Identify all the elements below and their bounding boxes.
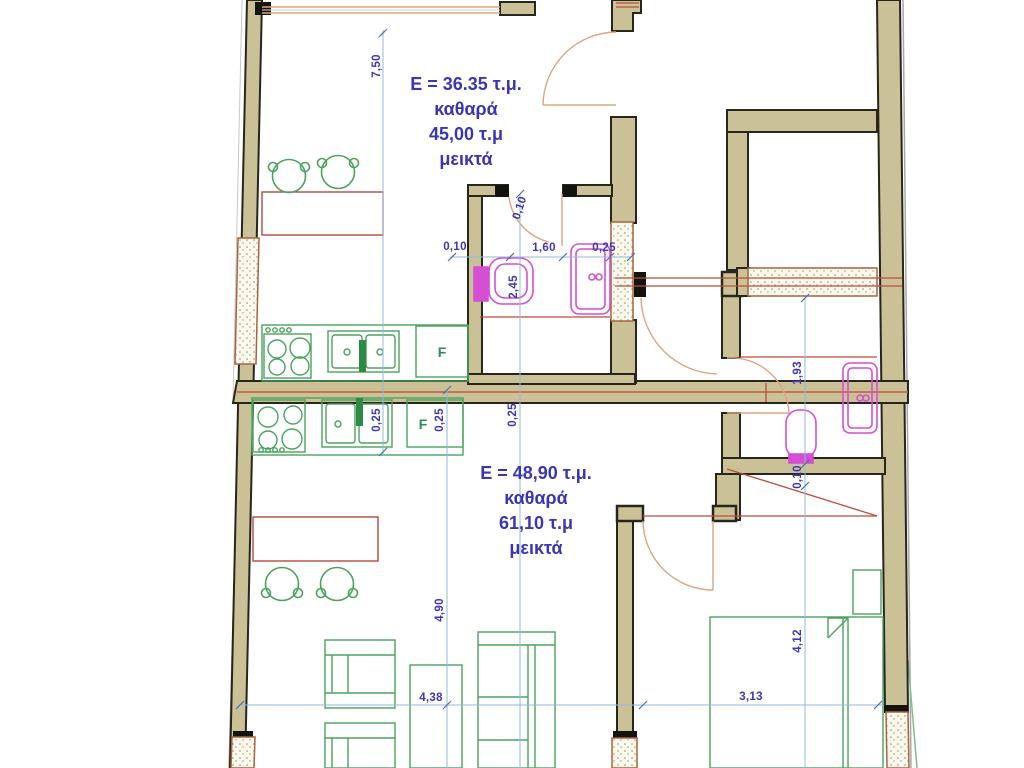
unit2-area-line3: 61,10 τ.μ: [426, 511, 646, 536]
top-window: [262, 7, 500, 13]
nightstand: [853, 570, 881, 614]
shaft-top-wall: [727, 110, 877, 132]
unit2-area-line2: καθαρά: [426, 486, 646, 511]
dim-label-1-93: 1,93: [792, 361, 804, 385]
floor-plan-canvas: E = 36.35 τ.μ. καθαρά 45,00 τ.μ μεικτά E…: [0, 0, 1024, 768]
kitchen-2: [252, 398, 463, 455]
unit1-area-line1: E = 36.35 τ.μ.: [356, 72, 576, 97]
armchair-a: [325, 640, 395, 708]
dining-table-2: [253, 517, 378, 561]
stove-1: [264, 328, 311, 378]
bathroom-1-fixtures: [474, 244, 610, 314]
unit2-area-line4: μεικτά: [426, 536, 646, 561]
unit1-area-label: E = 36.35 τ.μ. καθαρά 45,00 τ.μ μεικτά: [356, 72, 576, 172]
unit1-area-line2: καθαρά: [356, 97, 576, 122]
sink-basin-1: [571, 244, 610, 314]
stove-2: [253, 400, 305, 452]
dim-label-0-25-h: 0,25: [592, 242, 616, 254]
toilet-2: [786, 410, 816, 463]
unit2-area-line1: E = 48,90 τ.μ.: [426, 461, 646, 486]
dim-label-0-25-v1: 0,25: [371, 408, 383, 432]
dim-label-1-60: 1,60: [532, 242, 556, 254]
armchair-b: [325, 723, 395, 768]
unit2-area-label: E = 48,90 τ.μ. καθαρά 61,10 τ.μ μεικτά: [426, 461, 646, 561]
dim-label-0-10-h: 0,10: [443, 241, 467, 253]
dim-label-0-25-v3: 0,25: [507, 403, 519, 427]
unit1-area-line3: 45,00 τ.μ: [356, 122, 576, 147]
bath2-left-lower: [722, 413, 740, 460]
dim-label-2-45: 2,45: [508, 275, 520, 299]
corridor-door-unit1: [641, 298, 717, 374]
dim-label-4-38: 4,38: [419, 692, 443, 704]
dim-label-7-50: 7,50: [371, 54, 383, 78]
coffee-table: [410, 665, 462, 768]
dim-label-0-10-v: 0,10: [792, 465, 804, 489]
bath1-bottom: [468, 374, 635, 384]
bath2-left-upper: [722, 296, 740, 358]
corridor-wall-upper: [611, 117, 636, 223]
sofa: [478, 632, 555, 768]
window-pier: [500, 2, 535, 15]
fridge-1-label: F: [438, 344, 447, 360]
dim-label-0-25-v2: 0,25: [434, 408, 446, 432]
bedroom-door-cap-right: [713, 506, 736, 521]
bedroom-door: [643, 521, 713, 590]
unit1-area-line4: μεικτά: [356, 147, 576, 172]
dim-label-4-12: 4,12: [792, 629, 804, 653]
bedroom-furniture: [710, 570, 883, 768]
shaft-left-wall: [727, 132, 748, 270]
fridge-2-label: F: [419, 416, 428, 432]
dining-table-1: [262, 192, 383, 235]
dim-label-4-90: 4,90: [434, 598, 446, 622]
sink-1: [328, 331, 399, 372]
entry-wall-piece: [612, 0, 641, 31]
dim-label-3-13: 3,13: [739, 691, 763, 703]
